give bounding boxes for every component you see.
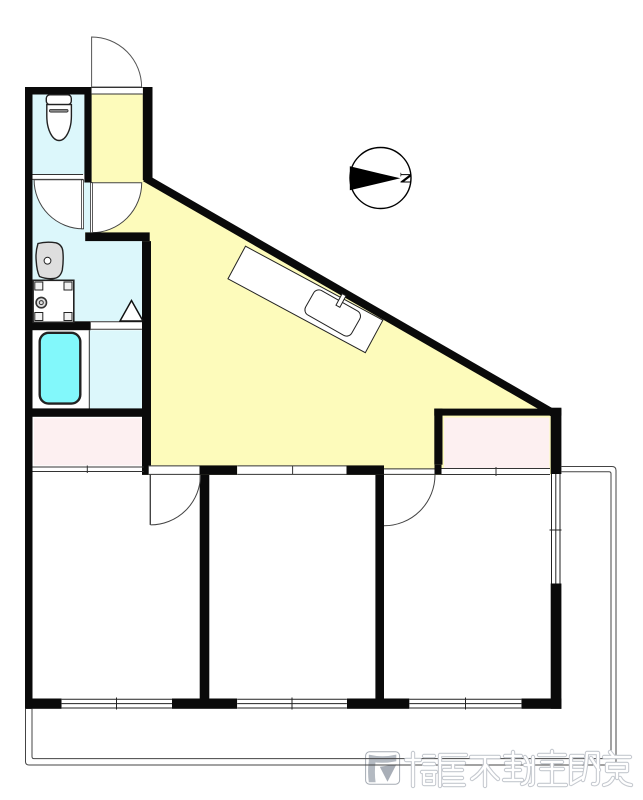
svg-text:N: N (397, 173, 414, 185)
